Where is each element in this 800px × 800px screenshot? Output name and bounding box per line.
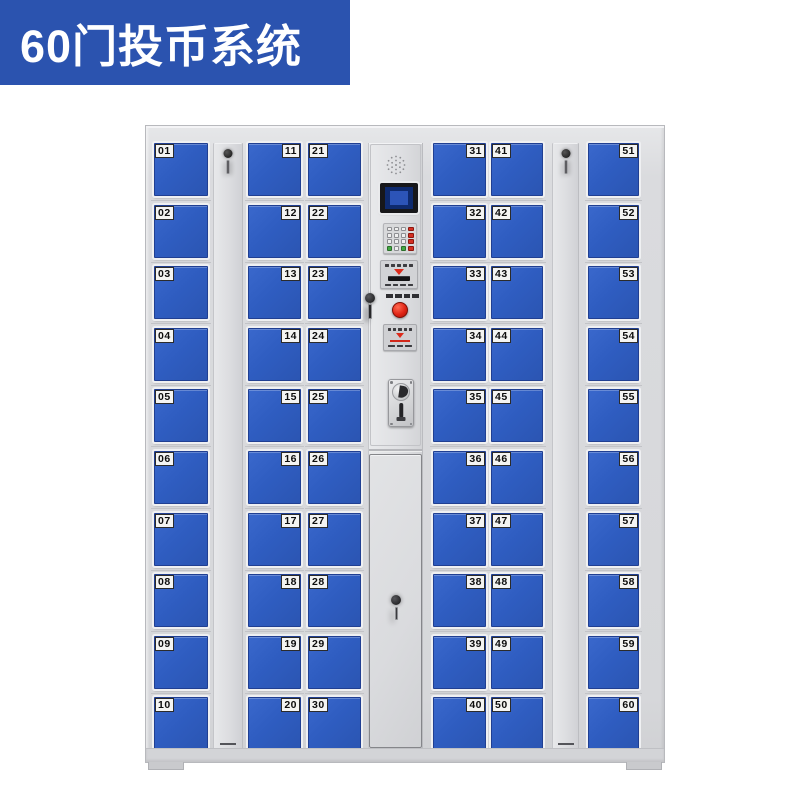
coin-return-lever[interactable] [399, 403, 403, 418]
keypad-key[interactable] [387, 239, 393, 244]
control-key-lock[interactable] [363, 293, 377, 323]
door-cell: 16 [248, 451, 301, 504]
side-lock-panel-right [552, 143, 579, 751]
door-number-label: 25 [309, 390, 328, 404]
locker-door[interactable]: 05 [154, 389, 208, 442]
lock-knob-icon [224, 149, 233, 158]
panel-vent-slot [558, 743, 574, 745]
lock-knob-icon [365, 293, 375, 303]
door-number-label: 07 [155, 514, 174, 528]
locker-door[interactable]: 08 [154, 574, 208, 627]
locker-door[interactable]: 57 [588, 513, 639, 566]
keypad-key[interactable] [401, 233, 407, 238]
door-cell: 05 [154, 389, 208, 442]
door-number-label: 39 [466, 637, 485, 651]
door-cell: 02 [154, 205, 208, 258]
cabinet-foot-left [148, 762, 184, 770]
screw-icon [410, 423, 413, 426]
locker-door[interactable]: 49 [491, 636, 543, 689]
locker-door[interactable]: 17 [248, 513, 301, 566]
door-cell: 08 [154, 574, 208, 627]
door-cell: 10 [154, 697, 208, 750]
keypad-key[interactable] [394, 227, 400, 232]
locker-door[interactable]: 41 [491, 143, 543, 196]
locker-door[interactable]: 60 [588, 697, 639, 750]
locker-door[interactable]: 07 [154, 513, 208, 566]
door-number-label: 31 [466, 144, 485, 158]
door-number-label: 58 [619, 575, 638, 589]
locker-door[interactable]: 31 [433, 143, 486, 196]
locker-door[interactable]: 16 [248, 451, 301, 504]
door-cell: 45 [491, 389, 543, 442]
door-cell: 21 [308, 143, 361, 196]
door-number-label: 36 [466, 452, 485, 466]
door-number-label: 05 [155, 390, 174, 404]
instruction-line-2 [388, 345, 412, 348]
card-reader-text [385, 264, 413, 267]
door-number-label: 03 [155, 267, 174, 281]
door-cell: 12 [248, 205, 301, 258]
door-cell: 09 [154, 636, 208, 689]
locker-cabinet: 01020304050607080910 1112131415161718192… [145, 125, 665, 763]
door-number-label: 09 [155, 637, 174, 651]
door-number-label: 38 [466, 575, 485, 589]
door-number-label: 27 [309, 514, 328, 528]
down-arrow-icon [396, 333, 404, 338]
card-reader[interactable] [380, 260, 418, 289]
door-number-label: 57 [619, 514, 638, 528]
door-cell: 20 [248, 697, 301, 750]
door-number-label: 06 [155, 452, 174, 466]
locker-door[interactable]: 09 [154, 636, 208, 689]
door-column-2: 11121314151617181920 [248, 143, 301, 751]
door-cell: 40 [433, 697, 486, 750]
service-door[interactable] [369, 454, 422, 748]
door-column-5: 41424344454647484950 [491, 143, 543, 751]
locker-door[interactable]: 37 [433, 513, 486, 566]
door-number-label: 43 [492, 267, 511, 281]
locker-door[interactable]: 55 [588, 389, 639, 442]
locker-door[interactable]: 04 [154, 328, 208, 381]
door-number-label: 33 [466, 267, 485, 281]
keypad-key[interactable] [401, 246, 407, 251]
door-number-label: 34 [466, 329, 485, 343]
door-cell: 01 [154, 143, 208, 196]
door-cell: 48 [491, 574, 543, 627]
door-cell: 17 [248, 513, 301, 566]
inserted-key-icon [564, 160, 567, 174]
inserted-key-icon [227, 160, 230, 174]
door-cell: 26 [308, 451, 361, 504]
cabinet-base [146, 749, 664, 762]
locker-door[interactable]: 53 [588, 266, 639, 319]
coin-return-tray [397, 417, 406, 421]
door-cell: 14 [248, 328, 301, 381]
locker-door[interactable]: 25 [308, 389, 361, 442]
door-cell: 24 [308, 328, 361, 381]
numeric-keypad[interactable] [383, 223, 417, 254]
door-number-label: 17 [281, 514, 300, 528]
door-number-label: 13 [281, 267, 300, 281]
door-cell: 28 [308, 574, 361, 627]
keypad-key[interactable] [401, 227, 407, 232]
door-number-label: 12 [281, 206, 300, 220]
keypad-key[interactable] [387, 246, 393, 251]
screw-icon [410, 381, 413, 384]
locker-door[interactable]: 50 [491, 697, 543, 750]
door-cell: 25 [308, 389, 361, 442]
door-number-label: 53 [619, 267, 638, 281]
button-caption-text [386, 294, 419, 298]
locker-door[interactable]: 34 [433, 328, 486, 381]
door-cell: 41 [491, 143, 543, 196]
door-number-label: 02 [155, 206, 174, 220]
locker-door[interactable]: 45 [491, 389, 543, 442]
panel-key-lock[interactable] [559, 149, 573, 191]
door-cell: 49 [491, 636, 543, 689]
door-cell: 58 [588, 574, 639, 627]
door-cell: 03 [154, 266, 208, 319]
door-cell: 59 [588, 636, 639, 689]
locker-door[interactable]: 28 [308, 574, 361, 627]
panel-key-lock[interactable] [221, 149, 235, 191]
door-number-label: 46 [492, 452, 511, 466]
door-cell: 22 [308, 205, 361, 258]
door-cell: 46 [491, 451, 543, 504]
door-cell: 42 [491, 205, 543, 258]
door-cell: 51 [588, 143, 639, 196]
keypad-key[interactable] [394, 246, 400, 251]
locker-door[interactable]: 20 [248, 697, 301, 750]
locker-door[interactable]: 18 [248, 574, 301, 627]
door-number-label: 30 [309, 698, 328, 712]
door-cell: 38 [433, 574, 486, 627]
door-cell: 57 [588, 513, 639, 566]
door-number-label: 01 [155, 144, 174, 158]
locker-door[interactable]: 47 [491, 513, 543, 566]
door-cell: 33 [433, 266, 486, 319]
service-door-lock[interactable] [389, 595, 403, 627]
door-cell: 35 [433, 389, 486, 442]
lcd-display [380, 183, 418, 213]
locker-door[interactable]: 51 [588, 143, 639, 196]
door-number-label: 14 [281, 329, 300, 343]
lock-knob-icon [391, 595, 401, 605]
insert-arrow-icon [394, 269, 404, 275]
door-number-label: 52 [619, 206, 638, 220]
door-number-label: 23 [309, 267, 328, 281]
coin-return-button[interactable] [392, 302, 408, 318]
door-cell: 37 [433, 513, 486, 566]
door-cell: 34 [433, 328, 486, 381]
door-number-label: 21 [309, 144, 328, 158]
door-number-label: 47 [492, 514, 511, 528]
door-number-label: 32 [466, 206, 485, 220]
door-cell: 44 [491, 328, 543, 381]
locker-door[interactable]: 12 [248, 205, 301, 258]
instruction-label [383, 324, 417, 351]
locker-door[interactable]: 59 [588, 636, 639, 689]
locker-door[interactable]: 48 [491, 574, 543, 627]
lcd-screen [385, 187, 413, 209]
door-number-label: 26 [309, 452, 328, 466]
door-number-label: 24 [309, 329, 328, 343]
door-cell: 39 [433, 636, 486, 689]
locker-door[interactable]: 15 [248, 389, 301, 442]
door-column-6: 51525354555657585960 [588, 143, 639, 751]
door-number-label: 48 [492, 575, 511, 589]
door-cell: 47 [491, 513, 543, 566]
product-banner: 60门投币系统 [0, 0, 350, 85]
banner-title: 60门投币系统 [20, 10, 302, 75]
door-cell: 50 [491, 697, 543, 750]
door-cell: 32 [433, 205, 486, 258]
door-number-label: 56 [619, 452, 638, 466]
door-number-label: 08 [155, 575, 174, 589]
keypad-key[interactable] [387, 233, 393, 238]
locker-door[interactable]: 44 [491, 328, 543, 381]
door-cell: 31 [433, 143, 486, 196]
door-cell: 07 [154, 513, 208, 566]
door-number-label: 54 [619, 329, 638, 343]
locker-door[interactable]: 26 [308, 451, 361, 504]
door-number-label: 29 [309, 637, 328, 651]
locker-door[interactable]: 30 [308, 697, 361, 750]
door-number-label: 45 [492, 390, 511, 404]
door-cell: 36 [433, 451, 486, 504]
coin-acceptor[interactable] [388, 379, 414, 427]
door-column-3: 21222324252627282930 [308, 143, 361, 751]
locker-door[interactable]: 58 [588, 574, 639, 627]
door-cell: 13 [248, 266, 301, 319]
card-reader-subtext [385, 284, 413, 286]
locker-door[interactable]: 03 [154, 266, 208, 319]
keyhole-shadow [395, 607, 398, 620]
locker-door[interactable]: 29 [308, 636, 361, 689]
locker-door[interactable]: 32 [433, 205, 486, 258]
door-number-label: 16 [281, 452, 300, 466]
locker-door[interactable]: 54 [588, 328, 639, 381]
keypad-key[interactable] [401, 239, 407, 244]
keypad-key[interactable] [408, 227, 414, 232]
door-number-label: 18 [281, 575, 300, 589]
door-number-label: 22 [309, 206, 328, 220]
locker-door[interactable]: 24 [308, 328, 361, 381]
lock-knob-icon [561, 149, 570, 158]
locker-door[interactable]: 06 [154, 451, 208, 504]
locker-door[interactable]: 35 [433, 389, 486, 442]
locker-door[interactable]: 19 [248, 636, 301, 689]
door-number-label: 19 [281, 637, 300, 651]
locker-door[interactable]: 36 [433, 451, 486, 504]
door-number-label: 20 [281, 698, 300, 712]
door-number-label: 04 [155, 329, 174, 343]
locker-door[interactable]: 46 [491, 451, 543, 504]
locker-door[interactable]: 01 [154, 143, 208, 196]
control-column [368, 143, 423, 751]
door-number-label: 59 [619, 637, 638, 651]
locker-door[interactable]: 56 [588, 451, 639, 504]
panel-seam [369, 449, 422, 451]
door-number-label: 28 [309, 575, 328, 589]
keypad-key[interactable] [394, 233, 400, 238]
keypad-key[interactable] [408, 239, 414, 244]
locker-door[interactable]: 02 [154, 205, 208, 258]
door-number-label: 50 [492, 698, 511, 712]
keypad-key[interactable] [394, 239, 400, 244]
door-number-label: 49 [492, 637, 511, 651]
door-cell: 18 [248, 574, 301, 627]
door-number-label: 40 [466, 698, 485, 712]
locker-door[interactable]: 38 [433, 574, 486, 627]
door-number-label: 10 [155, 698, 174, 712]
door-cell: 55 [588, 389, 639, 442]
panel-vent-slot [220, 743, 236, 745]
locker-door[interactable]: 52 [588, 205, 639, 258]
locker-door[interactable]: 42 [491, 205, 543, 258]
door-column-4: 31323334353637383940 [433, 143, 486, 751]
locker-door[interactable]: 23 [308, 266, 361, 319]
door-number-label: 55 [619, 390, 638, 404]
service-lock-row [368, 291, 423, 323]
door-number-label: 44 [492, 329, 511, 343]
keypad-key[interactable] [408, 246, 414, 251]
locker-door[interactable]: 10 [154, 697, 208, 750]
locker-door[interactable]: 13 [248, 266, 301, 319]
door-cell: 54 [588, 328, 639, 381]
locker-door[interactable]: 43 [491, 266, 543, 319]
door-number-label: 37 [466, 514, 485, 528]
door-number-label: 60 [619, 698, 638, 712]
side-lock-panel-left [213, 143, 243, 751]
locker-door[interactable]: 21 [308, 143, 361, 196]
door-number-label: 35 [466, 390, 485, 404]
door-cell: 43 [491, 266, 543, 319]
door-cell: 27 [308, 513, 361, 566]
card-slot[interactable] [388, 276, 410, 281]
door-cell: 29 [308, 636, 361, 689]
keypad-key[interactable] [408, 233, 414, 238]
door-number-label: 41 [492, 144, 511, 158]
door-cell: 52 [588, 205, 639, 258]
door-cell: 15 [248, 389, 301, 442]
door-cell: 60 [588, 697, 639, 750]
locker-door[interactable]: 22 [308, 205, 361, 258]
instruction-line-1 [388, 328, 412, 331]
door-number-label: 51 [619, 144, 638, 158]
door-cell: 04 [154, 328, 208, 381]
door-cell: 11 [248, 143, 301, 196]
cabinet-foot-right [626, 762, 662, 770]
door-number-label: 11 [282, 144, 300, 158]
speaker-grille-icon [381, 150, 411, 185]
screw-icon [390, 423, 393, 426]
locker-door[interactable]: 33 [433, 266, 486, 319]
door-cell: 06 [154, 451, 208, 504]
door-cell: 56 [588, 451, 639, 504]
door-cell: 23 [308, 266, 361, 319]
door-number-label: 42 [492, 206, 511, 220]
locker-door[interactable]: 14 [248, 328, 301, 381]
door-cell: 30 [308, 697, 361, 750]
door-cell: 53 [588, 266, 639, 319]
locker-door[interactable]: 40 [433, 697, 486, 750]
door-number-label: 15 [281, 390, 300, 404]
instruction-red-line [390, 340, 410, 342]
locker-door[interactable]: 27 [308, 513, 361, 566]
door-cell: 19 [248, 636, 301, 689]
locker-door[interactable]: 39 [433, 636, 486, 689]
door-column-1: 01020304050607080910 [154, 143, 208, 751]
keypad-key[interactable] [387, 227, 393, 232]
locker-door[interactable]: 11 [248, 143, 301, 196]
screw-icon [390, 381, 393, 384]
inserted-key-icon [368, 304, 372, 319]
